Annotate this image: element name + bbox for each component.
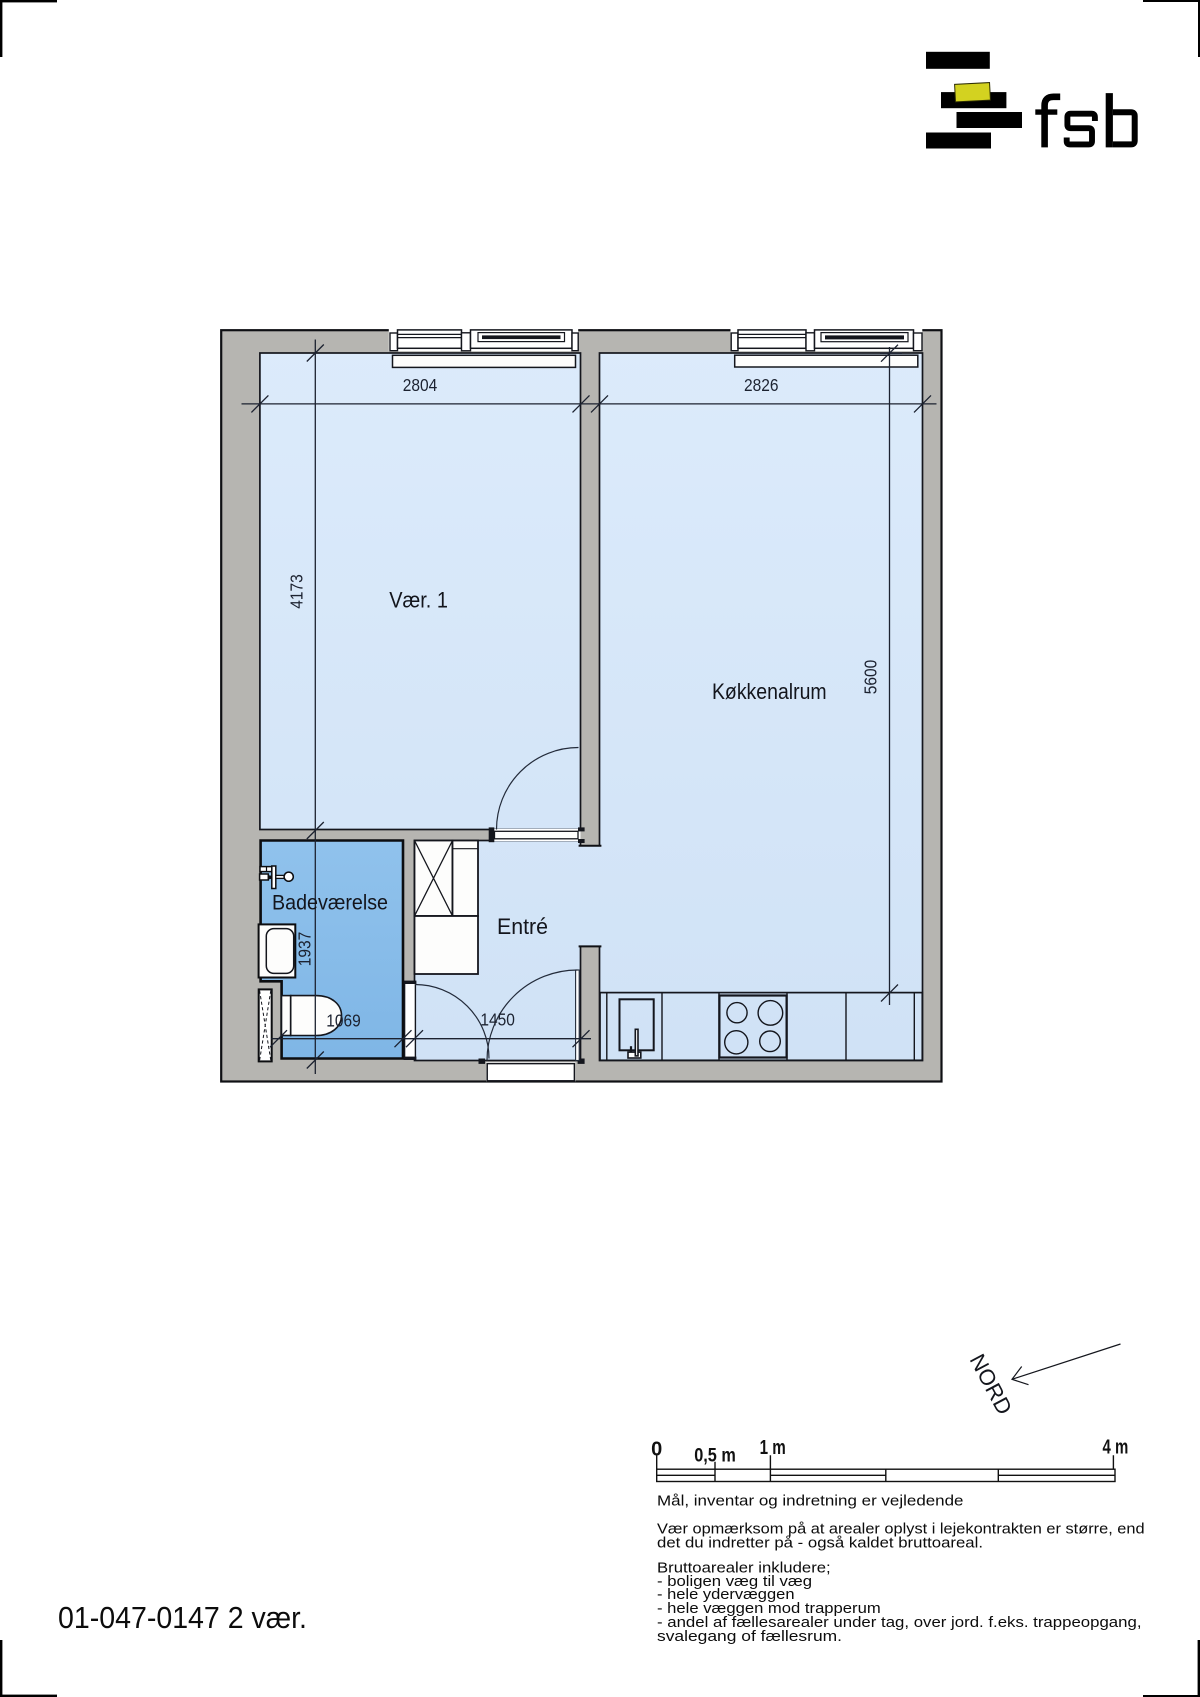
svg-text:1069: 1069 — [326, 1011, 361, 1031]
svg-text:01-047-0147 2 vær.: 01-047-0147 2 vær. — [58, 1601, 307, 1635]
svg-text:NORD: NORD — [965, 1350, 1017, 1419]
svg-text:0,5 m: 0,5 m — [694, 1446, 736, 1467]
svg-text:1450: 1450 — [480, 1010, 515, 1030]
svg-text:Entré: Entré — [497, 914, 548, 939]
svg-text:2804: 2804 — [403, 375, 438, 395]
svg-text:4 m: 4 m — [1103, 1436, 1129, 1458]
svg-text:Køkkenalrum: Køkkenalrum — [712, 679, 827, 704]
svg-text:Badeværelse: Badeværelse — [272, 890, 388, 914]
svg-text:0: 0 — [651, 1438, 662, 1460]
svg-text:5600: 5600 — [861, 660, 881, 695]
svg-text:1937: 1937 — [294, 932, 314, 967]
svg-text:Vær. 1: Vær. 1 — [389, 588, 448, 613]
svg-text:svalegang of fællesrum.: svalegang of fællesrum. — [657, 1629, 842, 1645]
svg-text:2826: 2826 — [744, 375, 779, 395]
svg-text:4173: 4173 — [286, 574, 306, 609]
svg-text:det du indretter på - også kal: det du indretter på - også kaldet brutto… — [657, 1535, 983, 1551]
svg-text:1 m: 1 m — [760, 1437, 786, 1459]
svg-text:Mål, inventar og indretning er: Mål, inventar og indretning er vejledend… — [657, 1494, 964, 1510]
